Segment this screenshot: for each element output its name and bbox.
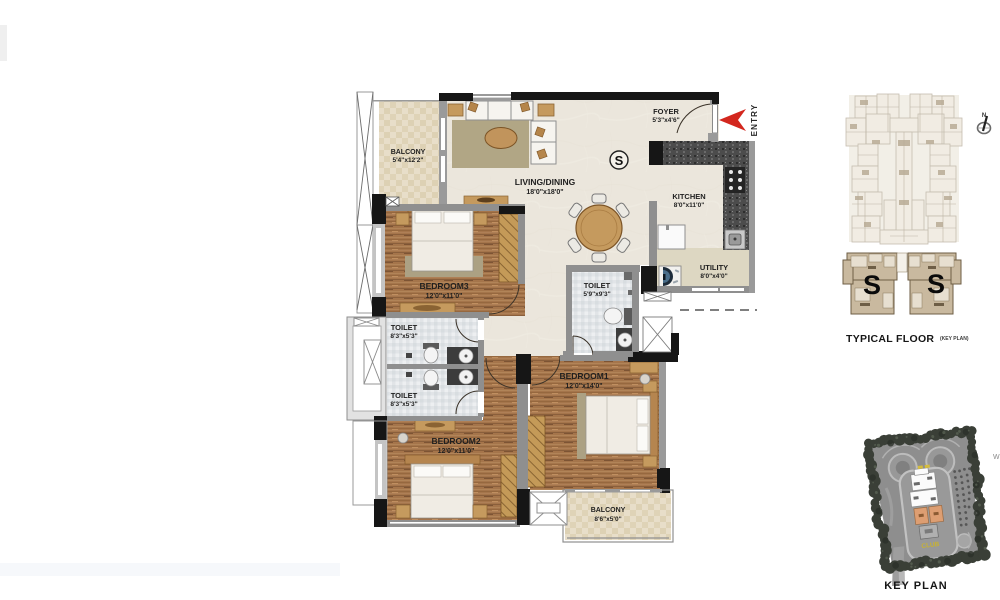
svg-text:TOILET: TOILET: [391, 323, 418, 332]
svg-text:BEDROOM3: BEDROOM3: [419, 281, 468, 291]
svg-text:5'9"x9'3": 5'9"x9'3": [583, 291, 610, 298]
svg-text:S: S: [927, 269, 945, 299]
svg-text:BEDROOM1: BEDROOM1: [559, 371, 608, 381]
svg-text:18'0"x18'0": 18'0"x18'0": [526, 189, 563, 196]
svg-text:TOILET: TOILET: [391, 391, 418, 400]
svg-text:S: S: [863, 270, 881, 300]
svg-text:8'0"x11'0": 8'0"x11'0": [674, 202, 705, 209]
svg-text:5'3"x4'6": 5'3"x4'6": [652, 117, 679, 124]
svg-text:5'4"x12'2": 5'4"x12'2": [393, 157, 424, 164]
svg-text:ENTRY: ENTRY: [750, 104, 759, 137]
svg-text:KEY PLAN: KEY PLAN: [884, 580, 947, 592]
svg-text:KITCHEN: KITCHEN: [672, 192, 705, 201]
svg-text:(KEY PLAN): (KEY PLAN): [940, 336, 969, 342]
svg-text:TOILET: TOILET: [584, 281, 611, 290]
svg-text:12'0"x11'0": 12'0"x11'0": [426, 293, 463, 300]
svg-text:12'0"x11'0": 12'0"x11'0": [438, 448, 475, 455]
svg-text:TYPICAL FLOOR: TYPICAL FLOOR: [846, 333, 934, 345]
svg-text:LIVING/DINING: LIVING/DINING: [515, 177, 576, 187]
svg-text:8'0"x4'0": 8'0"x4'0": [700, 273, 727, 280]
svg-text:W: W: [993, 454, 1000, 461]
svg-text:UTILITY: UTILITY: [700, 263, 728, 272]
svg-text:FOYER: FOYER: [653, 107, 679, 116]
svg-text:S: S: [615, 153, 624, 168]
svg-text:12'0"x14'0": 12'0"x14'0": [565, 383, 602, 390]
svg-text:8'3"x5'3": 8'3"x5'3": [390, 401, 417, 408]
svg-text:BALCONY: BALCONY: [591, 507, 626, 514]
svg-text:8'6"x5'0": 8'6"x5'0": [594, 516, 621, 523]
svg-text:BALCONY: BALCONY: [391, 149, 426, 156]
svg-text:BEDROOM2: BEDROOM2: [431, 436, 480, 446]
svg-text:8'3"x5'3": 8'3"x5'3": [390, 333, 417, 340]
svg-text:N: N: [982, 113, 986, 119]
